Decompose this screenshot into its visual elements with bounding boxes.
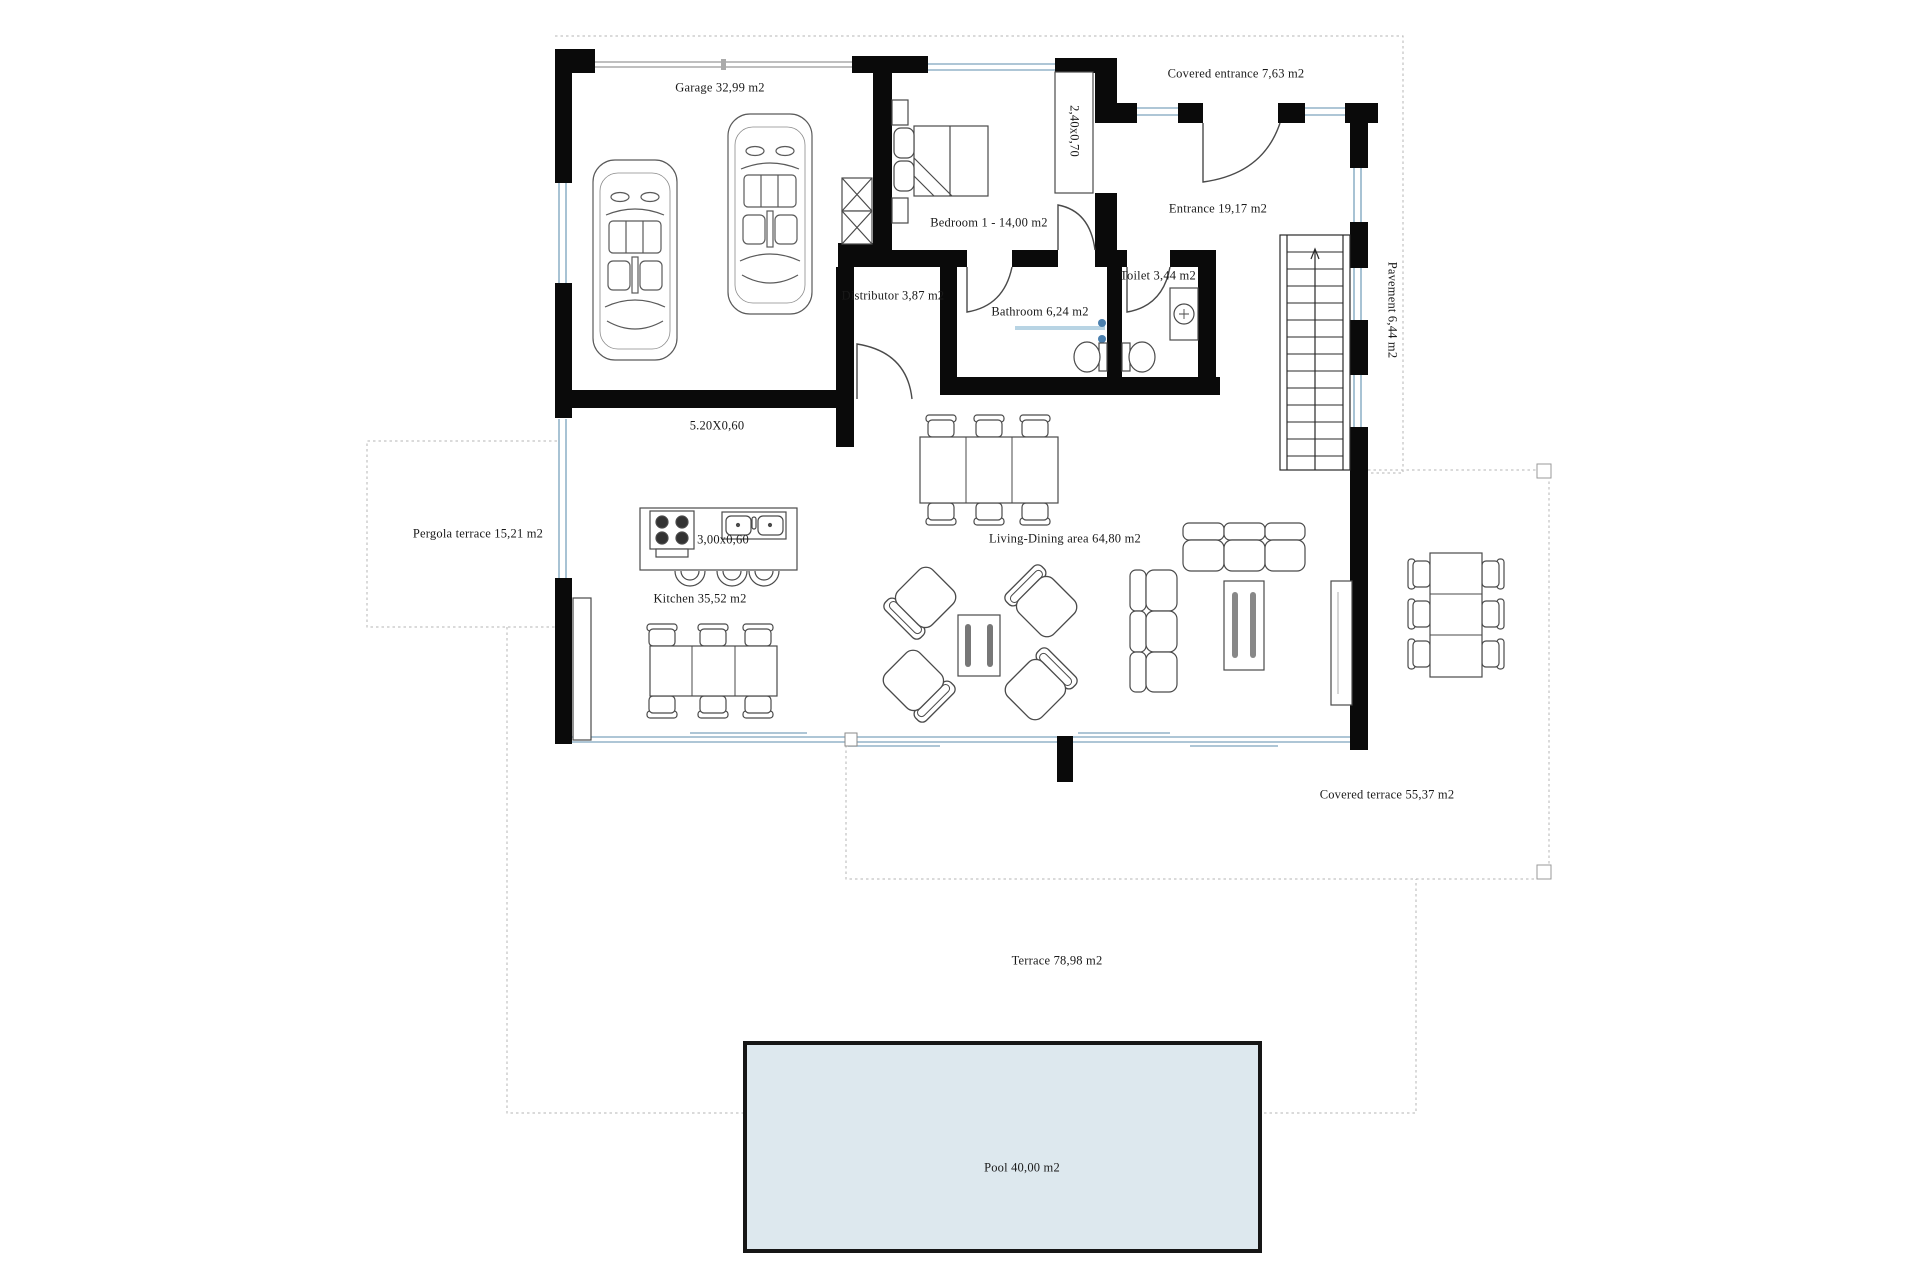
armchair-ne [1002, 562, 1081, 641]
distributor-door [857, 344, 912, 399]
main-entrance-door [1203, 123, 1280, 182]
toilet-sink [1170, 288, 1198, 340]
sofa-vertical [1130, 570, 1177, 692]
dining-table-group [920, 415, 1058, 525]
kitchen-counter [573, 598, 591, 740]
pergola-boundary [367, 441, 557, 627]
coffee-table [958, 615, 1000, 676]
armchair-se [1000, 645, 1079, 724]
kitchen-table-group [647, 624, 777, 718]
toilet-wc [1122, 342, 1155, 372]
garage-door [595, 59, 852, 70]
outdoor-table-group [1408, 553, 1504, 677]
lounge-group [878, 562, 1081, 724]
bed [892, 100, 988, 223]
garage-cabinet [842, 178, 872, 244]
sideboard [1331, 581, 1352, 705]
floor-plan-drawing [0, 0, 1920, 1280]
staircase [1280, 235, 1350, 470]
garage-car-1 [593, 160, 677, 360]
tv-table [1224, 581, 1264, 670]
outdoor-table [1430, 553, 1482, 677]
bedroom-closet [1055, 72, 1093, 193]
stove [650, 511, 694, 557]
dashed-boundaries [367, 36, 1549, 1113]
bathroom-wc [1074, 342, 1107, 372]
sofa-horizontal [1183, 523, 1305, 571]
kitchen-island [640, 508, 797, 586]
kitchen-table [650, 646, 777, 696]
kitchen-sink [722, 512, 786, 539]
bathroom-fixtures [1015, 288, 1198, 372]
floor-plan-page: Garage 32,99 m2Covered entrance 7,63 m22… [0, 0, 1920, 1280]
dining-table [920, 437, 1058, 503]
glass-wall-junction [845, 733, 857, 746]
pool [745, 1043, 1260, 1251]
toilet-door [1127, 267, 1170, 312]
armchair-sw [878, 645, 957, 724]
bathroom-door [967, 267, 1012, 312]
terrace-boundary [507, 627, 1416, 1113]
armchair-nw [881, 562, 960, 641]
garage-car-2 [728, 114, 812, 314]
bedroom-door [1058, 205, 1095, 250]
